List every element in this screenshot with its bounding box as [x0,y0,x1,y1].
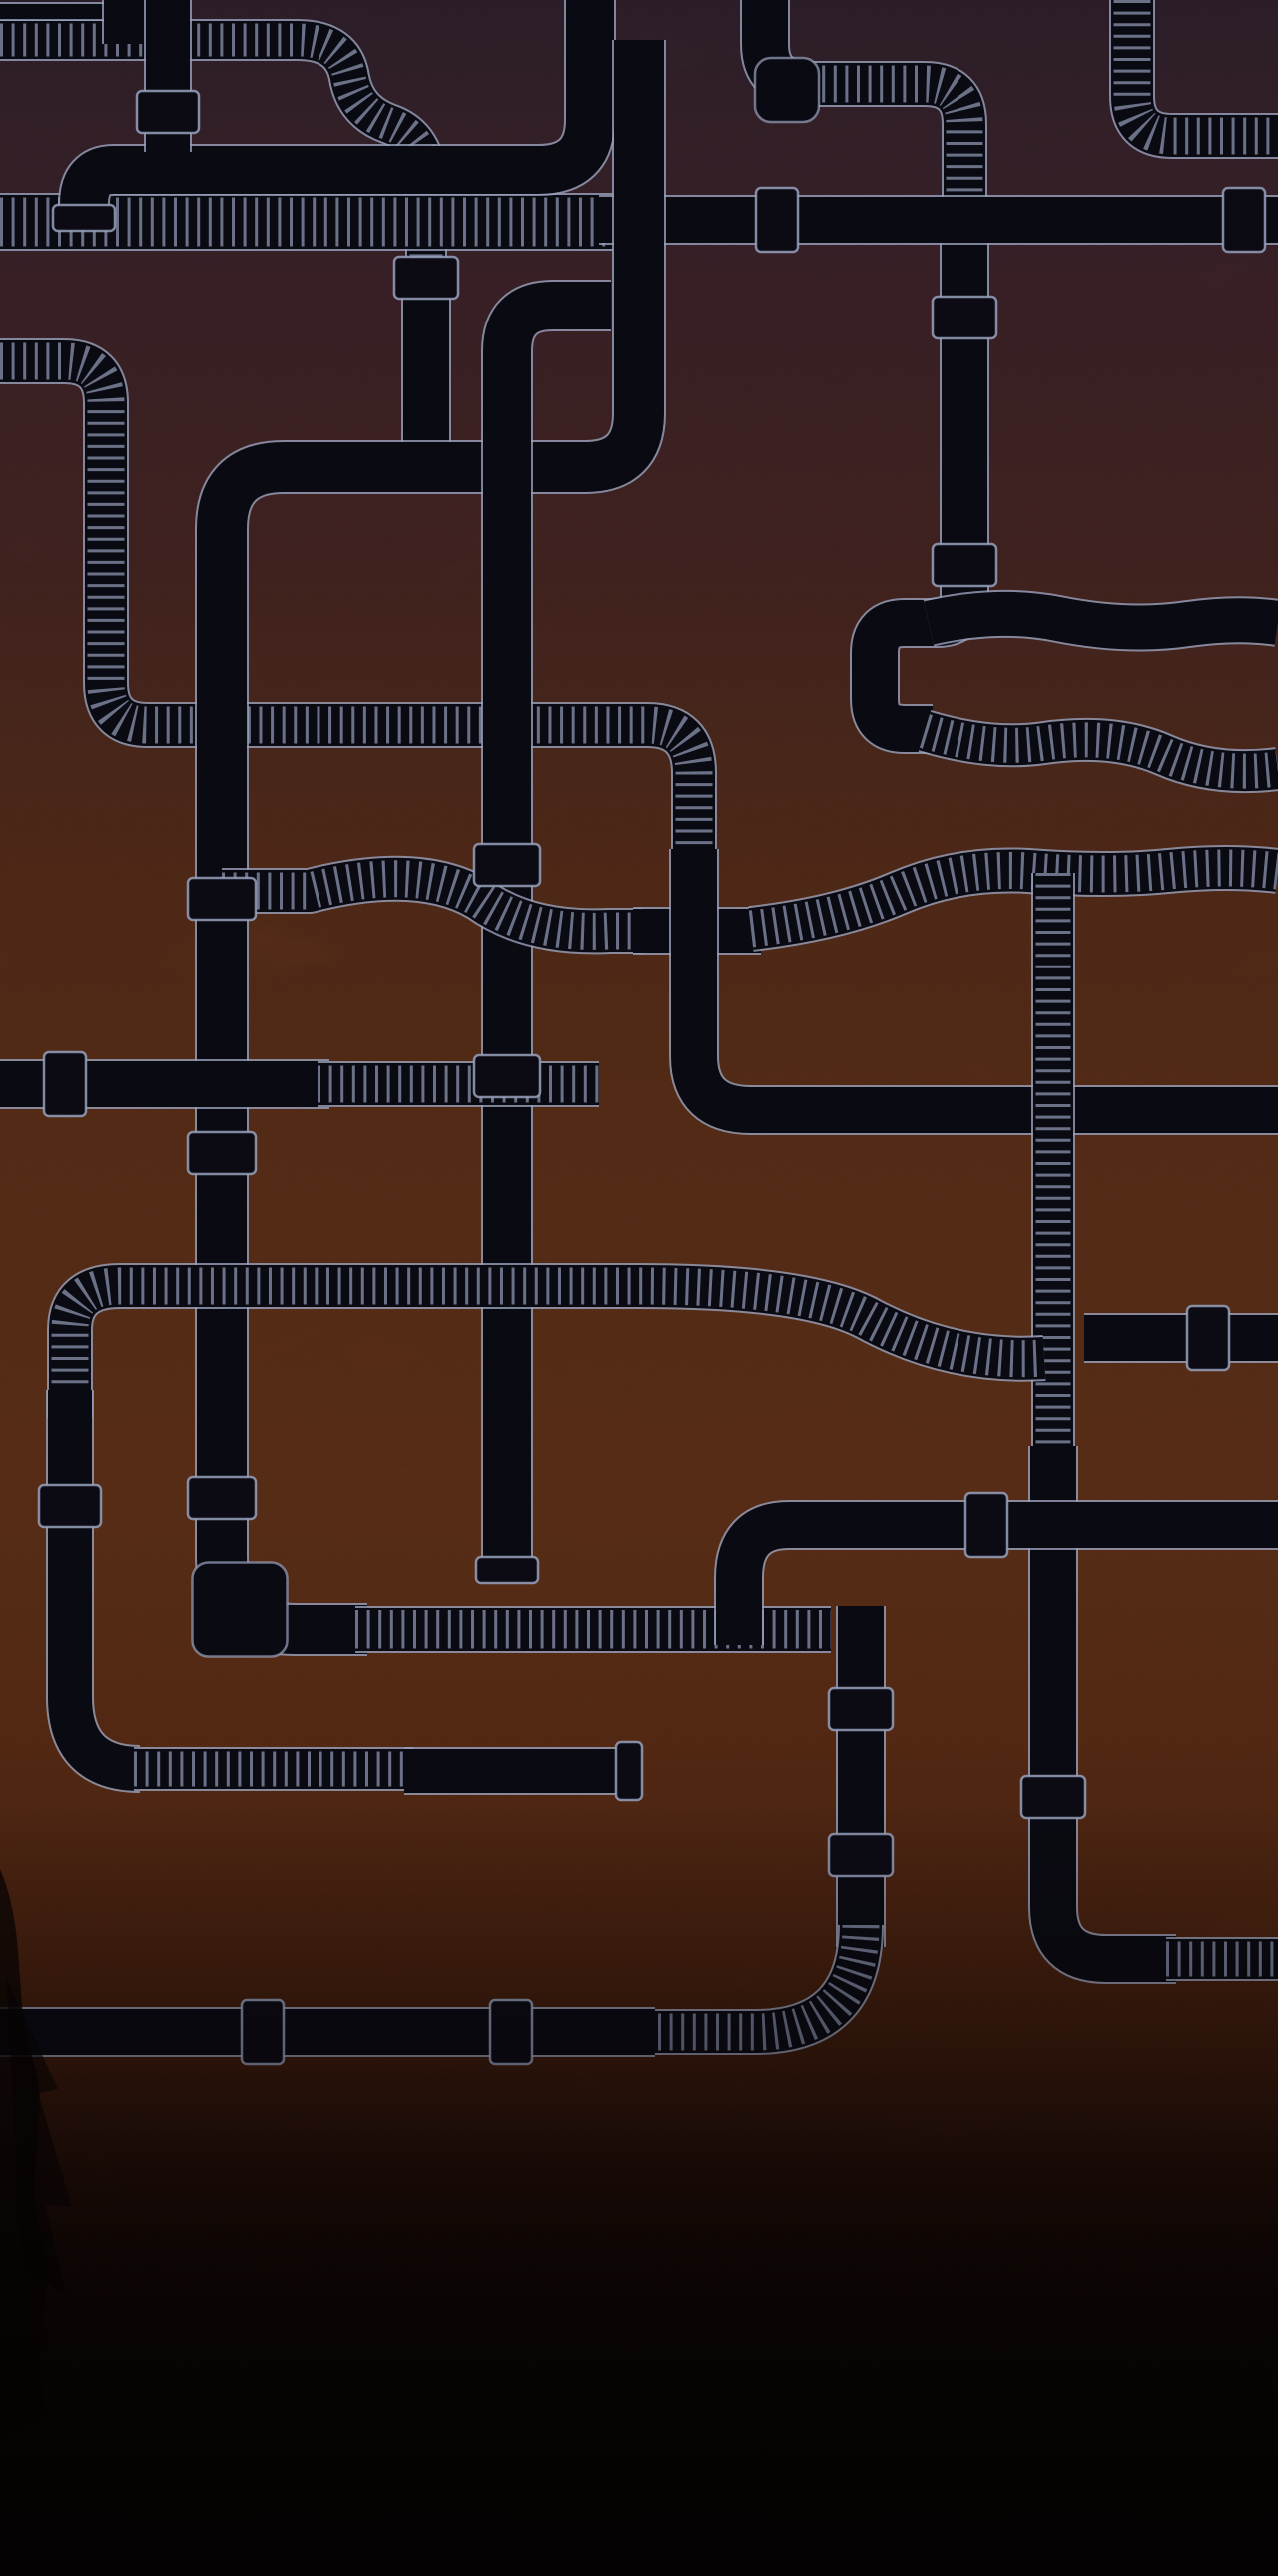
pipe-network-canvas [0,0,1278,2576]
pipes-artwork [0,0,1278,2576]
bottom-vignette [0,0,1278,2576]
